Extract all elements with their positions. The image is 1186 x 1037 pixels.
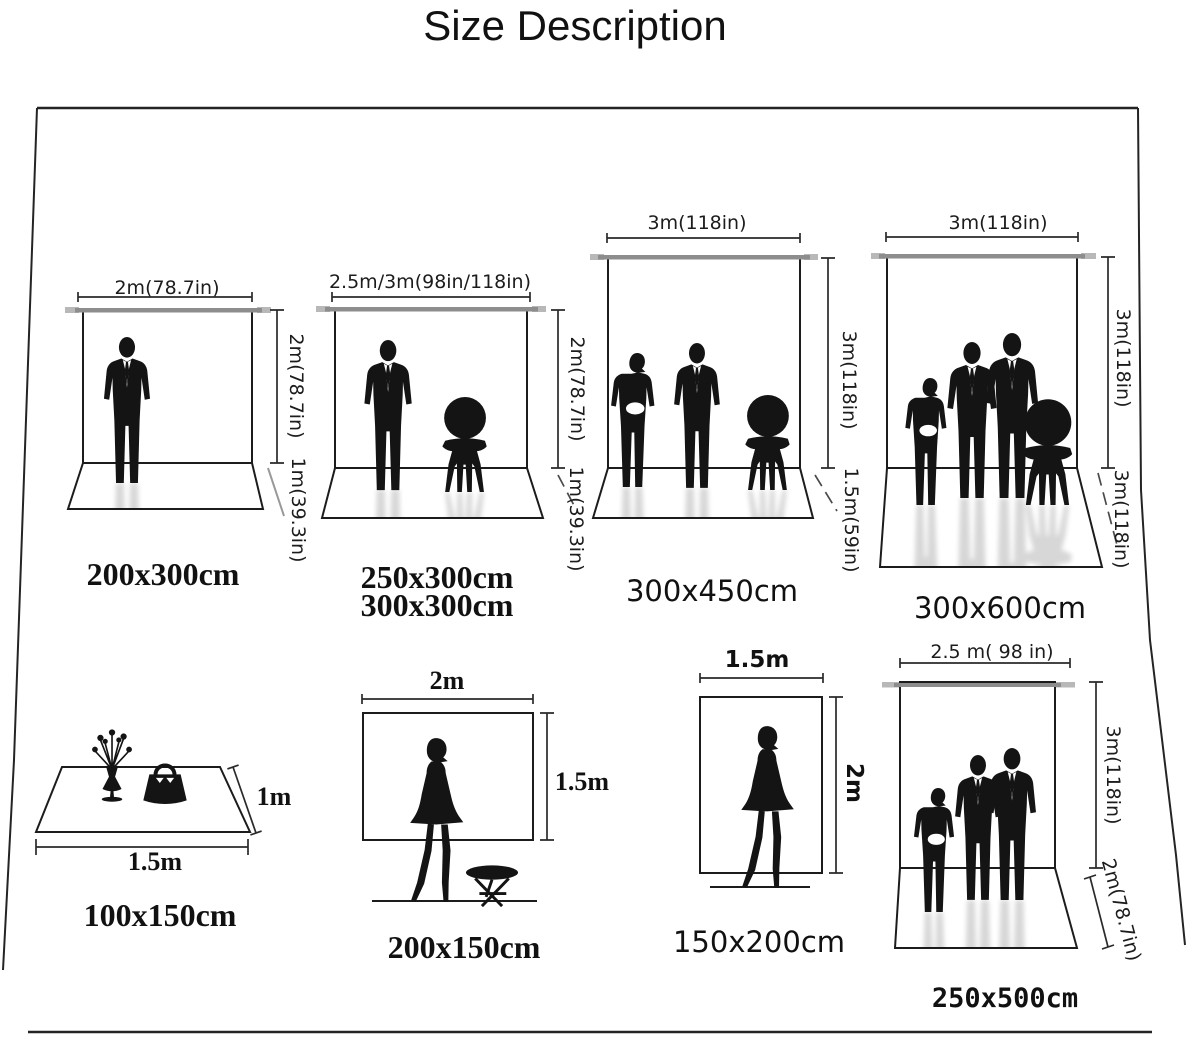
d3-height-measure-line [821, 258, 835, 468]
size-description-sheet: Size Description 2m(78.7in) 2m(78.7in) 1… [0, 0, 1186, 1037]
d8-caption: 250x500cm [932, 983, 1078, 1014]
d8-height-label: 3m(118in) [1102, 725, 1124, 824]
d7-height-label: 2m [841, 763, 867, 803]
d6-width-measure-line [362, 694, 533, 704]
d2-caption-line2: 300x300cm [361, 587, 514, 622]
d6-caption: 200x150cm [388, 929, 541, 965]
d3-height-label: 3m(118in) [838, 330, 860, 429]
diagram-300x600: 3m(118in) 3m(118in) 3m(118in) 300x600cm [870, 205, 1186, 635]
d1-caption: 200x300cm [87, 556, 240, 590]
d2-width-measure-line [332, 292, 530, 302]
d7-height-measure-line [829, 697, 843, 873]
diagram-100x150: 1m 1.5m 100x150cm [20, 690, 320, 940]
d4-caption: 300x600cm [914, 591, 1086, 625]
d7-width-measure-line [700, 673, 823, 683]
d3-caption: 300x450cm [626, 574, 798, 605]
d4-depth-label: 3m(118in) [1110, 469, 1132, 568]
d7-width-label: 1.5m [725, 647, 790, 673]
d1-width-label: 2m(78.7in) [114, 278, 219, 299]
diagram-150x200: 1.5m 2m 150x200cm [640, 630, 890, 960]
d2-height-measure-line [551, 310, 565, 468]
d5-caption: 100x150cm [84, 897, 237, 933]
d4-floor [880, 468, 1102, 567]
d4-width-label: 3m(118in) [948, 212, 1047, 234]
d1-depth-measure-line [268, 468, 284, 516]
d1-crossbar [75, 308, 262, 313]
d4-height-label: 3m(118in) [1112, 308, 1134, 407]
d3-width-label: 3m(118in) [647, 212, 746, 234]
d1-height-measure-line [270, 310, 284, 463]
diagram-300x450: 3m(118in) 3m(118in) 1.5m(59in) 300x450cm [585, 205, 875, 605]
d6-height-measure-line [540, 713, 554, 840]
d3-depth-label: 1.5m(59in) [840, 467, 862, 572]
d6-width-label: 2m [430, 666, 465, 695]
d5-mat [36, 767, 250, 832]
diagram-250x500: 2.5 m( 98 in) 3m(118in) 2m(78.7in) 250x5… [870, 635, 1186, 1037]
d8-crossbar [894, 683, 1061, 687]
d2-crossbar [325, 307, 538, 312]
page-title: Size Description [423, 2, 726, 50]
diagram-200x300: 2m(78.7in) 2m(78.7in) 1m(39.3in) 200x300… [30, 278, 320, 590]
d8-height-measure-line [1089, 682, 1103, 868]
d2-depth-label: 1m(39.3in) [565, 466, 587, 571]
d4-crossbar [879, 254, 1085, 259]
d3-crossbar [598, 255, 810, 260]
d1-depth-label: 1m(39.3in) [287, 457, 309, 562]
d2-floor [322, 468, 543, 518]
d5-height-label: 1m [257, 782, 292, 811]
d1-floor [68, 463, 263, 509]
d3-width-measure-line [607, 233, 800, 243]
diagram-250x300-300x300: 2.5m/3m(98in/118in) 2m(78.7in) 1m(39.3in… [315, 270, 615, 622]
d6-height-label: 1.5m [555, 767, 610, 796]
d2-backdrop [335, 310, 527, 468]
d5-width-label: 1.5m [128, 847, 183, 876]
d8-width-label: 2.5 m( 98 in) [930, 641, 1053, 663]
d1-height-label: 2m(78.7in) [285, 333, 307, 438]
d3-depth-measure-line [815, 475, 837, 511]
diagram-200x150: 2m 1.5m 200x150cm [330, 650, 630, 980]
d2-width-label: 2.5m/3m(98in/118in) [329, 271, 531, 293]
d7-caption: 150x200cm [673, 925, 845, 959]
